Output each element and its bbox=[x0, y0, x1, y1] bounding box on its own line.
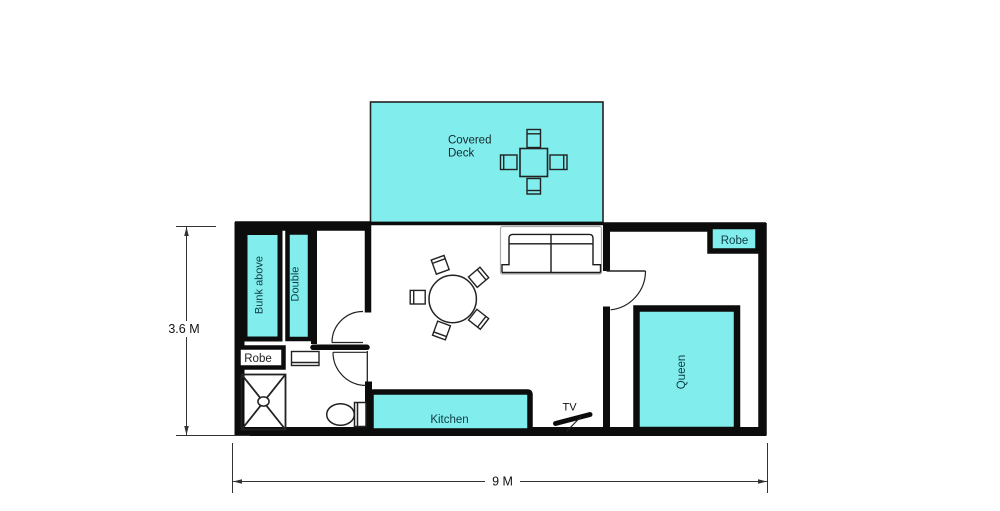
svg-text:Kitchen: Kitchen bbox=[430, 414, 468, 426]
svg-text:TV: TV bbox=[562, 402, 577, 414]
svg-text:Double: Double bbox=[290, 267, 302, 302]
svg-text:9 M: 9 M bbox=[492, 475, 513, 489]
svg-text:Bunk above: Bunk above bbox=[254, 256, 266, 314]
svg-text:3.6 M: 3.6 M bbox=[168, 322, 199, 336]
svg-text:Queen: Queen bbox=[676, 355, 688, 390]
svg-text:Robe: Robe bbox=[721, 235, 749, 247]
svg-text:Deck: Deck bbox=[448, 148, 474, 160]
svg-text:Covered: Covered bbox=[448, 135, 491, 147]
svg-text:Robe: Robe bbox=[244, 353, 272, 365]
